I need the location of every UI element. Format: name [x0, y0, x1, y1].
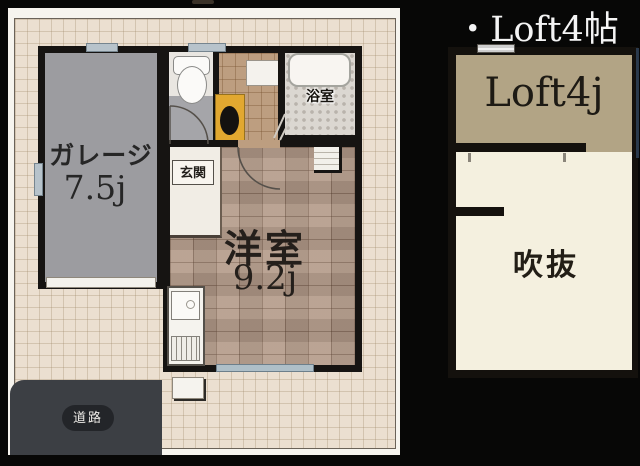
- room-door-opening: [238, 140, 280, 148]
- panel-edge-highlight: [636, 48, 639, 158]
- main-room-south-window: [216, 364, 314, 372]
- kitchen-sink-drain-icon: [186, 300, 195, 309]
- loft-void-dividing-wall: [456, 143, 586, 152]
- toilet-bowl-icon: [177, 66, 207, 104]
- storage-shelf: [314, 147, 342, 173]
- bathroom-label: 浴室: [288, 86, 352, 106]
- washbasin-sink-icon: [220, 106, 239, 135]
- floor-plan-screenshot: ガレージ 7.5j 浴室 玄関 洋室 9.2j 道路 ・Loft4帖 Loft4…: [0, 0, 640, 466]
- garage-shutter-door: [46, 277, 156, 288]
- exterior-step: [172, 377, 204, 399]
- kitchen-stove-icon: [171, 336, 200, 361]
- garage-top-window: [86, 43, 118, 52]
- washing-machine-pad: [246, 60, 280, 86]
- main-room-size-label: 9.2j: [170, 258, 360, 298]
- top-edge-artifact: [192, 0, 214, 4]
- void-tick-right: [563, 153, 566, 162]
- road-label: 道路: [62, 405, 114, 431]
- void-tick-left: [468, 153, 471, 162]
- garage-label: ガレージ: [40, 136, 162, 172]
- void-label: 吹抜: [496, 240, 596, 284]
- void-wall-stub: [456, 207, 504, 216]
- loft-top-window: [477, 44, 515, 53]
- loft-panel-title: ・Loft4帖: [434, 1, 640, 52]
- toilet-top-window: [188, 43, 226, 52]
- garage-size-label: 7.5j: [34, 168, 156, 207]
- loft-size-label: Loft4j: [456, 70, 632, 116]
- entrance-label: 玄関: [172, 160, 214, 185]
- bathtub-icon: [288, 53, 351, 87]
